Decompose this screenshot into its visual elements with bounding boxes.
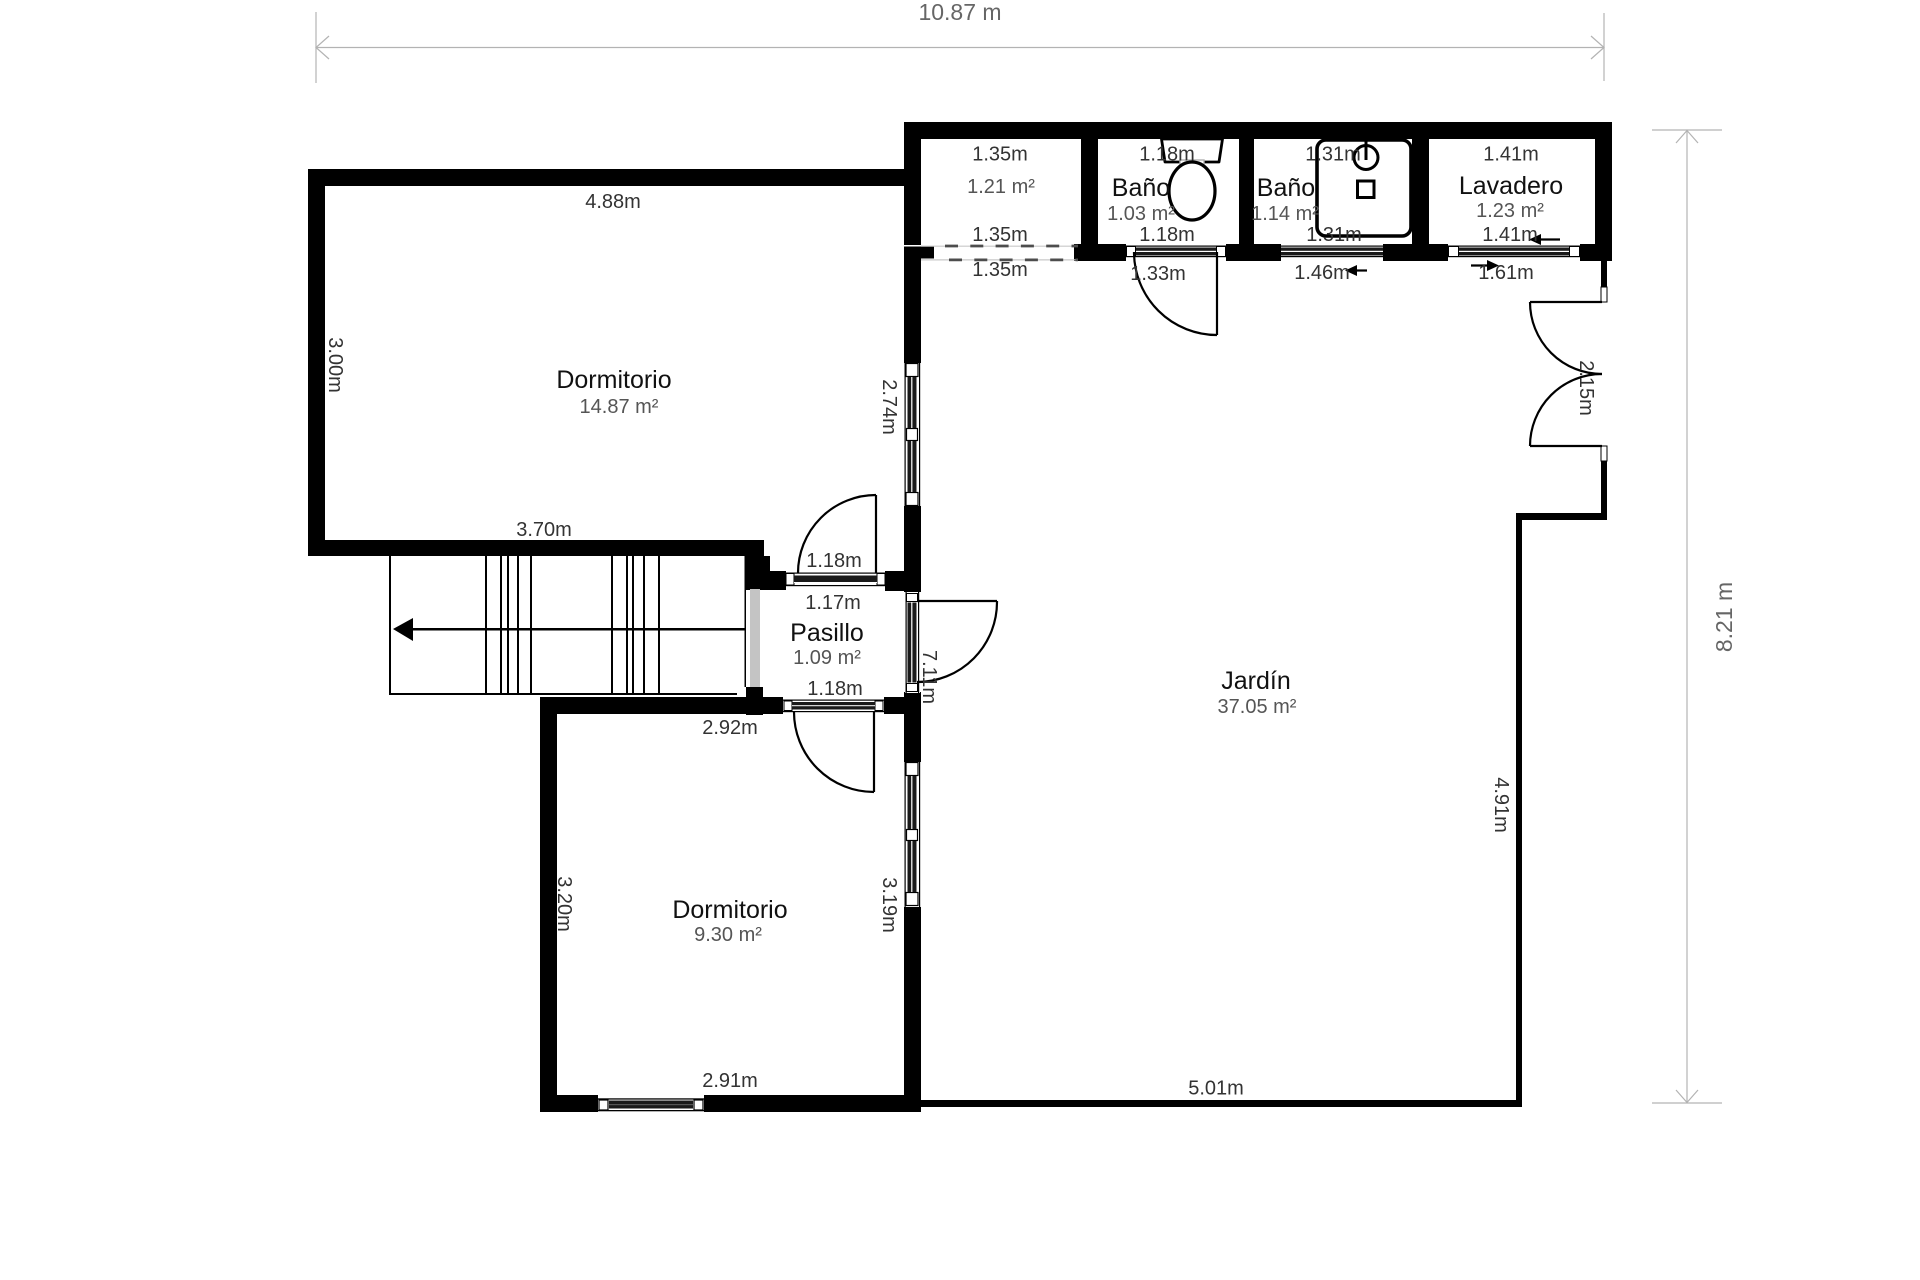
svg-text:1.31m: 1.31m (1306, 224, 1362, 246)
svg-text:Dormitorio: Dormitorio (672, 896, 787, 924)
svg-text:1.46m: 1.46m (1294, 262, 1350, 284)
svg-text:1.14 m²: 1.14 m² (1251, 203, 1319, 225)
svg-text:3.00m: 3.00m (324, 337, 346, 393)
svg-text:1.31m: 1.31m (1305, 144, 1361, 166)
svg-text:Lavadero: Lavadero (1459, 172, 1563, 200)
svg-text:9.30 m²: 9.30 m² (694, 924, 762, 946)
svg-text:37.05 m²: 37.05 m² (1218, 696, 1297, 718)
svg-text:1.09 m²: 1.09 m² (793, 647, 861, 669)
svg-text:3.20m: 3.20m (553, 876, 575, 932)
svg-text:8.21 m: 8.21 m (1711, 582, 1737, 652)
svg-text:Baño: Baño (1257, 174, 1315, 202)
svg-text:2.91m: 2.91m (702, 1070, 758, 1092)
svg-text:1.41m: 1.41m (1483, 144, 1539, 166)
svg-text:Pasillo: Pasillo (790, 619, 864, 647)
svg-text:4.88m: 4.88m (585, 191, 641, 213)
svg-text:2.74m: 2.74m (878, 379, 900, 435)
svg-text:1.41m: 1.41m (1482, 224, 1538, 246)
svg-text:1.23 m²: 1.23 m² (1476, 200, 1544, 222)
svg-text:1.17m: 1.17m (805, 592, 861, 614)
svg-text:1.18m: 1.18m (1139, 224, 1195, 246)
svg-text:1.35m: 1.35m (972, 144, 1028, 166)
svg-text:3.19m: 3.19m (878, 877, 900, 933)
svg-text:1.33m: 1.33m (1130, 263, 1186, 285)
svg-text:3.70m: 3.70m (516, 519, 572, 541)
svg-text:1.03 m²: 1.03 m² (1107, 203, 1175, 225)
svg-text:2.15m: 2.15m (1575, 360, 1597, 416)
svg-text:Jardín: Jardín (1221, 667, 1290, 695)
svg-text:1.18m: 1.18m (806, 550, 862, 572)
svg-text:10.87 m: 10.87 m (918, 0, 1001, 25)
svg-text:2.92m: 2.92m (702, 717, 758, 739)
svg-text:Baño: Baño (1112, 174, 1170, 202)
svg-text:7.11m: 7.11m (918, 650, 940, 704)
svg-text:4.91m: 4.91m (1490, 777, 1512, 833)
svg-text:1.61m: 1.61m (1478, 262, 1534, 284)
svg-text:5.01m: 5.01m (1188, 1078, 1244, 1100)
svg-text:1.21 m²: 1.21 m² (967, 176, 1035, 198)
svg-text:1.18m: 1.18m (807, 678, 863, 700)
svg-text:Dormitorio: Dormitorio (556, 366, 671, 394)
svg-text:14.87 m²: 14.87 m² (580, 396, 659, 418)
svg-text:1.35m: 1.35m (972, 224, 1028, 246)
svg-text:1.18m: 1.18m (1139, 144, 1195, 166)
svg-text:1.35m: 1.35m (972, 259, 1028, 281)
